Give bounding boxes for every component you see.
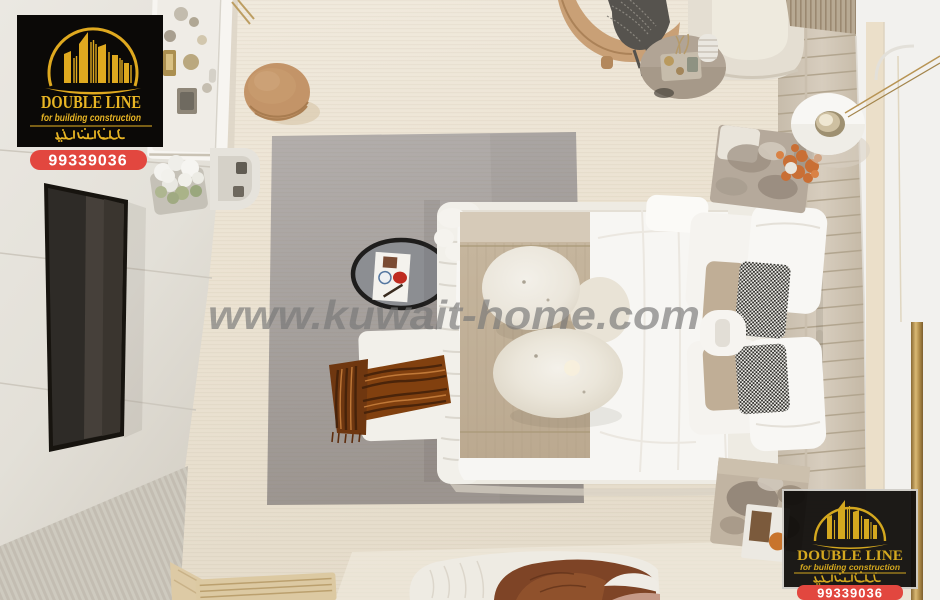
svg-text:DOUBLE LINE: DOUBLE LINE bbox=[41, 92, 141, 112]
svg-text:99339036: 99339036 bbox=[48, 153, 127, 170]
svg-text:www.kuwait-home.com: www.kuwait-home.com bbox=[208, 292, 700, 338]
svg-text:for building construction: for building construction bbox=[800, 562, 900, 572]
svg-text:for building construction: for building construction bbox=[41, 113, 141, 124]
svg-text:99339036: 99339036 bbox=[817, 586, 883, 600]
